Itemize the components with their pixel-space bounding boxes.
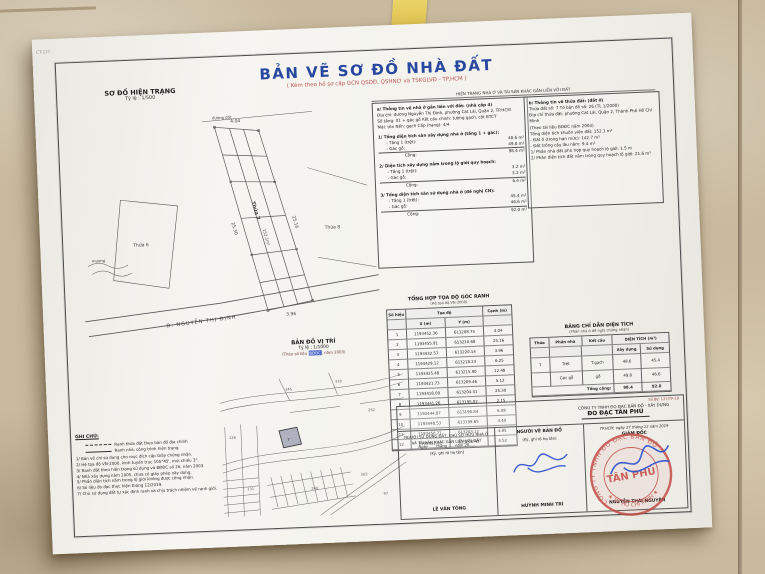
document-number: Số BV: 127/TP-19 bbox=[648, 397, 679, 402]
parcel-number: 163 bbox=[361, 472, 368, 476]
source-pre: (Theo số liệu bbox=[282, 351, 308, 357]
dim-left: 25.30 bbox=[229, 222, 238, 236]
house-area-block-3: 3/ Tổng diện tích sàn sử dụng nhà ở (đề … bbox=[380, 186, 527, 218]
parcel-label: Thửa 7 bbox=[250, 200, 262, 221]
owner-name: LÊ VĂN TÒNG bbox=[401, 505, 497, 516]
site-plan-lines bbox=[77, 109, 381, 337]
dim-bottom: 3.96 bbox=[286, 311, 296, 317]
note-lines: 1/ Bản vẽ chỉ sử dụng cho mục đích cấp G… bbox=[76, 449, 273, 498]
house-area-block-2: 2/ Diện tích xây dựng nằm trong lộ giới … bbox=[379, 157, 526, 189]
land-info-lines: Thửa đất số: 7 Tờ bản đồ số: 26 (TL 1/20… bbox=[529, 101, 657, 161]
parcel-number: 245 bbox=[285, 387, 292, 391]
drafter-name: HUỲNH MINH TRÍ bbox=[498, 502, 586, 512]
total-value: 6.4 m² bbox=[512, 177, 526, 184]
dashed-line-symbol bbox=[85, 444, 111, 446]
parcel-number: 252 bbox=[368, 408, 375, 412]
source-highlight: BĐĐC bbox=[308, 350, 322, 356]
row-label: - Gác gỗ: bbox=[388, 174, 407, 181]
ditch-label: mương bbox=[92, 258, 106, 264]
row-label: - Gác gỗ: bbox=[389, 203, 408, 210]
row-value: 46.6 m² bbox=[501, 199, 527, 206]
total-label: Tổng cộng: bbox=[532, 383, 614, 396]
parcel-number: 318 bbox=[335, 379, 342, 383]
dim-top: 4.04 bbox=[230, 118, 240, 124]
site-plan-labels: 4.04 25.16 25.30 3.96 Thửa 7 152.1m² Thử… bbox=[86, 110, 344, 332]
tile-grout-vertical bbox=[738, 0, 742, 574]
notes-block: GHI CHÚ: Ranh thửa đất theo bản đồ địa c… bbox=[75, 427, 273, 497]
subject-parcel-highlight bbox=[279, 427, 302, 448]
total-label: Cộng: bbox=[406, 182, 418, 189]
dim-right: 25.16 bbox=[290, 215, 299, 229]
photo-scene: CT-127 BẢN VẼ SƠ ĐỒ NHÀ ĐẤT ( Kèm theo h… bbox=[0, 0, 765, 574]
owner-signature-column: NGƯỜI SỬ DỤNG ĐẤT, CHỦ SỞ HỮU NHÀ Ở VÀ T… bbox=[398, 428, 498, 519]
source-post: , năm 2003) bbox=[322, 349, 346, 355]
total-xd: 98.4 bbox=[614, 381, 643, 392]
house-area-block-1: 1/ Tổng diện tích sàn xây dựng nhà ở (tầ… bbox=[378, 128, 525, 160]
neighbor-right-label: Thửa 8 bbox=[324, 223, 341, 231]
total-sd: 92.0 bbox=[643, 380, 671, 391]
total-value: 98.4 m² bbox=[509, 148, 525, 155]
tile-grout-horizontal bbox=[0, 6, 96, 12]
total-label: Cộng: bbox=[405, 153, 417, 160]
drawing-frame: BẢN VẼ SƠ ĐỒ NHÀ ĐẤT ( Kèm theo hồ sơ cấ… bbox=[55, 37, 692, 537]
area-table-grid: Thửa Phần nhà Kết cấu DIỆN TÍCH (m²) Xây… bbox=[529, 331, 671, 397]
road-name-label: Đ. NGUYỄN THỊ ĐỊNH bbox=[166, 312, 237, 329]
stamp-icon: CÔNG TY TNHH ĐO ĐẠC BẢN ĐỒ ★ TP. HỒ CHÍ … bbox=[573, 418, 689, 530]
land-info-box: b/ Thông tin về thửa đất: (đất ở) Thửa đ… bbox=[523, 91, 663, 208]
parcel-number: 97 bbox=[384, 492, 389, 496]
solid-line-symbol bbox=[86, 451, 112, 453]
parcel-number: 240 bbox=[311, 486, 318, 490]
parcel-area: 152.1m² bbox=[262, 228, 272, 246]
top-road-label: đường đất bbox=[212, 115, 232, 121]
document-sheet: CT-127 BẢN VẼ SƠ ĐỒ NHÀ ĐẤT ( Kèm theo h… bbox=[32, 13, 713, 555]
row-value: 49.8 m² bbox=[498, 140, 524, 147]
house-info-box: a/ Thông tin về nhà ở gắn liền với đất: … bbox=[372, 96, 535, 268]
area-table: BẢNG CHỈ DẪN DIỆN TÍCH (Phần nhà ở đề ng… bbox=[529, 321, 672, 397]
row-label: - Gác gỗ: bbox=[386, 145, 405, 152]
company-stamp: CÔNG TY TNHH ĐO ĐẠC BẢN ĐỒ ★ TP. HỒ CHÍ … bbox=[573, 418, 689, 530]
corner-mark: CT-127 bbox=[36, 49, 50, 55]
total-value: 92.0 m² bbox=[511, 206, 527, 213]
company-short-name: ĐO ĐẠC TÂN PHÚ bbox=[581, 409, 649, 420]
drafter-signature-icon bbox=[505, 444, 576, 483]
site-plan-drawing: 4.04 25.16 25.30 3.96 Thửa 7 152.1m² Thử… bbox=[62, 105, 383, 350]
row-value: 3.2 m² bbox=[499, 170, 525, 177]
total-label: Cộng: bbox=[407, 211, 419, 218]
neighbor-left-label: Thửa 6 bbox=[132, 241, 149, 249]
